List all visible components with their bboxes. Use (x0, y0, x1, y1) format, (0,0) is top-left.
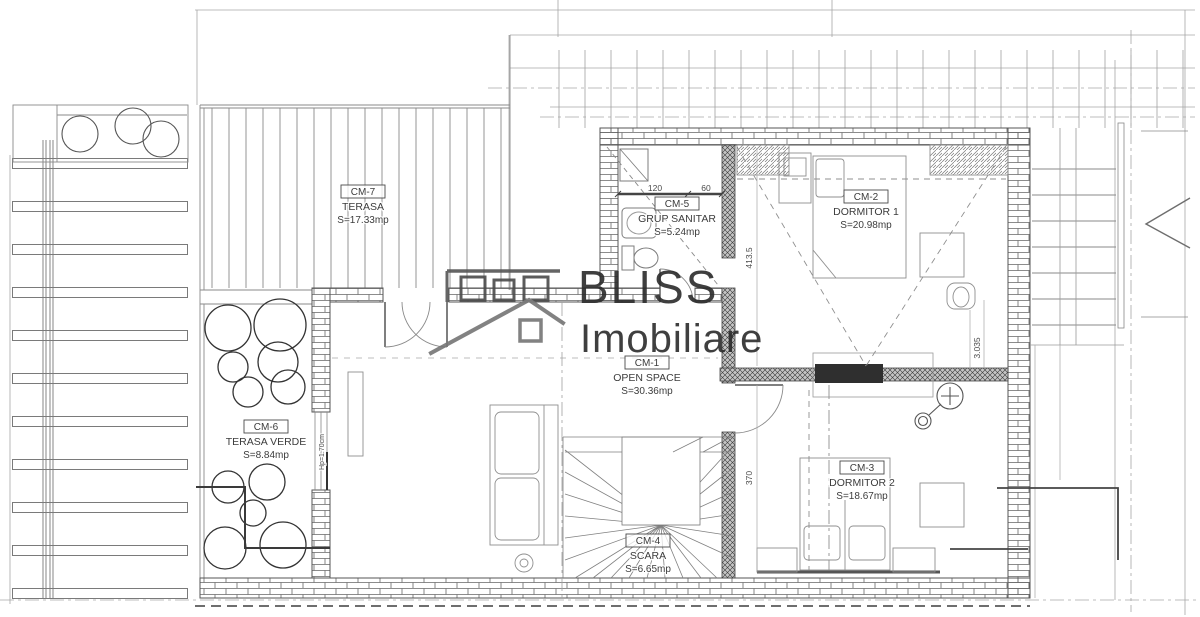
sofa (490, 405, 558, 545)
wall-green-terrace-lower (312, 490, 330, 578)
stool (515, 554, 533, 572)
watermark-sub: Imobiliare (580, 317, 763, 361)
wall-right (1008, 128, 1030, 598)
room-code: CM-5 (665, 199, 690, 210)
room-code: CM-4 (636, 536, 661, 547)
pillow-left (804, 526, 840, 560)
pillow-right (849, 526, 885, 560)
bedroom2-door (735, 385, 783, 433)
room-label-cm7: CM-7 TERASA S=17.33mp (337, 185, 389, 226)
room-area: S=20.98mp (840, 220, 892, 231)
dim-bedroom2-depth: 370 (744, 471, 754, 485)
dim-bath-left: 120 (648, 183, 662, 193)
green-terrace-bushes (196, 299, 330, 569)
watermark-brand: BLISS (578, 261, 718, 313)
dim-wall-seg: 3.035 (972, 337, 982, 359)
utility-lines (950, 488, 1118, 560)
nightstand-right (893, 548, 935, 572)
right-balcony (1030, 123, 1190, 598)
room-label-cm5: CM-5 GRUP SANITAR S=5.24mp (638, 197, 716, 238)
roof-slope-lines (737, 147, 1006, 366)
wardrobe-right (930, 145, 1008, 175)
dim-bedroom1-depth: 413.5 (744, 247, 754, 269)
entrance-double-door (385, 302, 447, 347)
dim-bath-right: 60 (701, 183, 711, 193)
room-name: SCARA (630, 550, 666, 562)
room-label-cm4: CM-4 SCARA S=6.65mp (625, 534, 671, 575)
room-code: CM-2 (854, 192, 879, 203)
room-name: DORMITOR 2 (829, 477, 895, 489)
room-name: TERASA VERDE (226, 436, 307, 448)
tv-stand (348, 372, 363, 456)
floor-plan-page: 120 60 413.5 3.035 370 Hp=1.70cm CM-7 TE… (0, 0, 1200, 617)
floor-plan-canvas: 120 60 413.5 3.035 370 Hp=1.70cm CM-7 TE… (0, 0, 1200, 617)
dim-parapet-height: Hp=1.70cm (319, 434, 326, 470)
room-area: S=8.84mp (243, 450, 289, 461)
room-name: OPEN SPACE (613, 372, 681, 384)
terrace-decking (200, 35, 510, 578)
bliss-watermark: BLISS Imobiliare (431, 261, 763, 361)
planter-box-trees (13, 105, 188, 162)
room-area: S=6.65mp (625, 564, 671, 575)
room-area: S=30.36mp (621, 386, 673, 397)
room-label-cm1: CM-1 OPEN SPACE S=30.36mp (613, 356, 681, 397)
room-label-cm3: CM-3 DORMITOR 2 S=18.67mp (829, 461, 895, 502)
room-code: CM-6 (254, 422, 279, 433)
room-name: DORMITOR 1 (833, 206, 899, 218)
nightstand-left (757, 548, 797, 572)
room-area: S=17.33mp (337, 215, 389, 226)
room-code: CM-7 (351, 187, 376, 198)
room-area: S=18.67mp (836, 491, 888, 502)
garden-edging (196, 487, 330, 548)
wall-bottom (200, 578, 1030, 598)
wall-entrance-left (330, 288, 383, 302)
room-area: S=5.24mp (654, 227, 700, 238)
desk-2 (920, 483, 964, 527)
wall-green-terrace-upper (312, 288, 330, 412)
section-marker-icon (915, 383, 963, 429)
room-name: GRUP SANITAR (638, 213, 716, 225)
pillow (816, 159, 844, 197)
room-label-cm6: CM-6 TERASA VERDE S=8.84mp (226, 420, 307, 461)
chevron-arrow-icon (1146, 198, 1190, 248)
room-name: TERASA (342, 201, 384, 213)
bedroom1-furniture (737, 145, 1008, 368)
wall-top (600, 128, 1030, 145)
room-code: CM-3 (850, 463, 875, 474)
pergola-slats (12, 140, 188, 599)
